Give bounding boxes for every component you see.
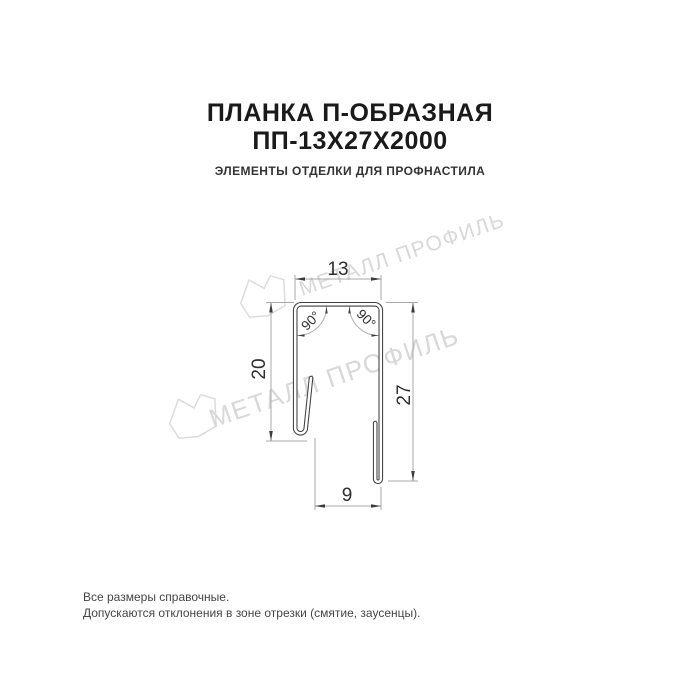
footer-note-2: Допускаются отклонения в зоне отрезки (с…	[83, 605, 420, 621]
angle-right-label: 90°	[354, 306, 379, 331]
angle-annotation-right: 90°	[348, 306, 378, 336]
footer-notes: Все размеры справочные. Допускаются откл…	[83, 589, 420, 621]
watermark-layer: МЕТАЛЛ ПРОФИЛЬ МЕТАЛЛ ПРОФИЛЬ	[166, 209, 508, 441]
metall-profil-logo-icon	[237, 274, 288, 319]
dimension-bottom-width: 9	[315, 438, 381, 510]
page: ПЛАНКА П-ОБРАЗНАЯ ПП-13Х27Х2000 ЭЛЕМЕНТЫ…	[0, 0, 700, 700]
angle-left-label: 90°	[298, 308, 323, 333]
watermark-text: МЕТАЛЛ ПРОФИЛЬ	[205, 320, 463, 434]
dim-right-height-label: 27	[394, 384, 415, 405]
angle-annotation-left: 90°	[298, 307, 328, 337]
dim-top-width-label: 13	[327, 259, 348, 280]
footer-note-1: Все размеры справочные.	[83, 589, 420, 605]
dimension-right-height: 27	[386, 303, 418, 482]
dim-bottom-width-label: 9	[342, 485, 353, 506]
watermark-text: МЕТАЛЛ ПРОФИЛЬ	[296, 209, 508, 301]
dim-left-height-label: 20	[249, 358, 270, 379]
